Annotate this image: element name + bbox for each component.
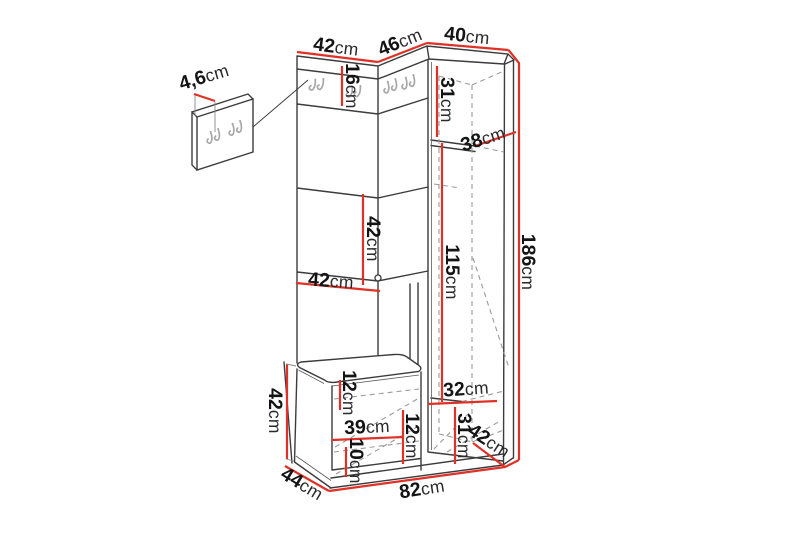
dim-label-mirror-panel-height: 42cm xyxy=(362,216,384,262)
background xyxy=(0,0,800,533)
dim-label-seat-thickness: 12cm xyxy=(338,370,360,416)
dim-label-hook-strip-height: 16cm xyxy=(341,63,363,109)
dim-label-left-section-width: 42cm xyxy=(307,268,354,293)
dim-label-total-height: 186cm xyxy=(517,234,539,290)
dim-label-cabinet-upper-height: 31cm xyxy=(436,77,458,123)
dim-label-cabinet-bottom-shelf-width: 32cm xyxy=(442,376,489,401)
dim-label-bench-shelf-width: 39cm xyxy=(344,415,391,439)
dim-label-bench-gap-height: 12cm xyxy=(401,413,423,459)
dim-label-cabinet-lower-height: 115cm xyxy=(441,244,463,299)
furniture-dimension-diagram: 4,6cm 42cm 46cm 40cm 16cm 31cm 38cm 42cm… xyxy=(0,0,800,533)
diagram-svg: 4,6cm 42cm 46cm 40cm 16cm 31cm 38cm 42cm… xyxy=(0,0,800,533)
dim-label-bench-shelf-gap-height: 10cm xyxy=(345,438,367,484)
dim-label-bench-height: 42cm xyxy=(264,388,286,434)
